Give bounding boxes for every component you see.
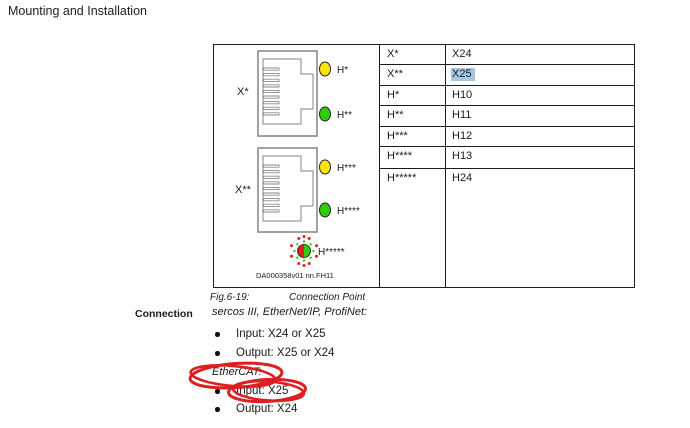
table-cell-key: H*** xyxy=(380,127,446,146)
table-cell-key: H***** xyxy=(380,169,446,287)
table-row: H* H10 xyxy=(380,86,634,106)
led-yellow-h3 xyxy=(320,160,331,174)
figure-table-frame: X* X** xyxy=(213,44,635,288)
connector-pins-top xyxy=(264,68,280,115)
connector-pins-bottom xyxy=(264,165,280,212)
led-label-h2: H** xyxy=(337,110,352,121)
figure-caption-title: Connection Point xyxy=(289,292,365,303)
table-cell-key: X* xyxy=(380,45,446,64)
cell-value-text: H12 xyxy=(452,130,472,142)
led-label-h1: H* xyxy=(337,65,348,76)
bullet-dot xyxy=(215,407,220,412)
ethercat-heading: EtherCAT: xyxy=(212,366,262,378)
bullet-dot xyxy=(215,351,220,356)
table-row: H** H11 xyxy=(380,106,634,127)
led-red-green-blinking xyxy=(290,235,318,267)
cell-value-text: H11 xyxy=(452,109,471,121)
table-cell-value: H10 xyxy=(446,86,634,105)
rj45-connector-bottom xyxy=(258,148,317,232)
cell-value-text: H10 xyxy=(452,89,472,101)
bullet-dot xyxy=(215,332,220,337)
table-cell-key: H**** xyxy=(380,147,446,168)
bullet-item-input-x25: Input: X25 xyxy=(236,385,288,397)
table-cell-key: H** xyxy=(380,106,446,126)
table-cell-key: X** xyxy=(380,65,446,85)
margin-label-connection: Connection xyxy=(135,308,193,320)
led-yellow-h1 xyxy=(320,62,331,76)
table-cell-value: H13 xyxy=(446,147,634,168)
bullet-dot xyxy=(215,389,220,394)
led-label-h5: H***** xyxy=(318,247,345,258)
protocols-heading: sercos III, EtherNet/IP, ProfiNet: xyxy=(212,306,367,318)
page-header: Mounting and Installation xyxy=(8,4,147,18)
table-cell-key: H* xyxy=(380,86,446,105)
connector-figure-svg: X* X** xyxy=(214,45,379,287)
led-green-h4 xyxy=(320,203,331,217)
drawing-number: DA000358v01 nn.FH11 xyxy=(256,271,334,280)
led-label-h4: H**** xyxy=(337,206,360,217)
cell-value-text: H24 xyxy=(452,172,472,184)
connector-figure: X* X** xyxy=(214,45,379,287)
figure-caption-label: Fig.6-19: xyxy=(210,292,249,303)
rj45-connector-top xyxy=(258,51,317,136)
table-row: X** X25 xyxy=(380,65,634,86)
led-green-h2 xyxy=(320,107,331,121)
table-cell-value: H11 xyxy=(446,106,634,126)
bullet-item-input-x24-x25: Input: X24 or X25 xyxy=(236,328,326,340)
bullet-item-output-x25-x24: Output: X25 or X24 xyxy=(236,347,334,359)
table-cell-value: H12 xyxy=(446,127,634,146)
table-row: H*** H12 xyxy=(380,127,634,147)
cell-value-text-selected[interactable]: X25 xyxy=(451,68,475,81)
cell-value-text: H13 xyxy=(452,150,472,162)
table-cell-value: X24 xyxy=(446,45,634,64)
table-row: X* X24 xyxy=(380,45,634,65)
table-row: H***** H24 xyxy=(380,169,634,287)
cell-value-text: X24 xyxy=(452,48,472,60)
bullet-item-output-x24: Output: X24 xyxy=(236,403,297,415)
table-cell-value: X25 xyxy=(446,65,634,85)
document-page: Mounting and Installation X* xyxy=(0,0,690,428)
led-label-h3: H*** xyxy=(337,163,356,174)
connector-label-x1: X* xyxy=(237,86,249,98)
table-row: H**** H13 xyxy=(380,147,634,169)
mapping-table: X* X24 X** X25 H* H10 H** H11 H*** H12 H… xyxy=(379,45,634,287)
table-cell-value: H24 xyxy=(446,169,634,287)
connector-label-x2: X** xyxy=(235,184,252,196)
